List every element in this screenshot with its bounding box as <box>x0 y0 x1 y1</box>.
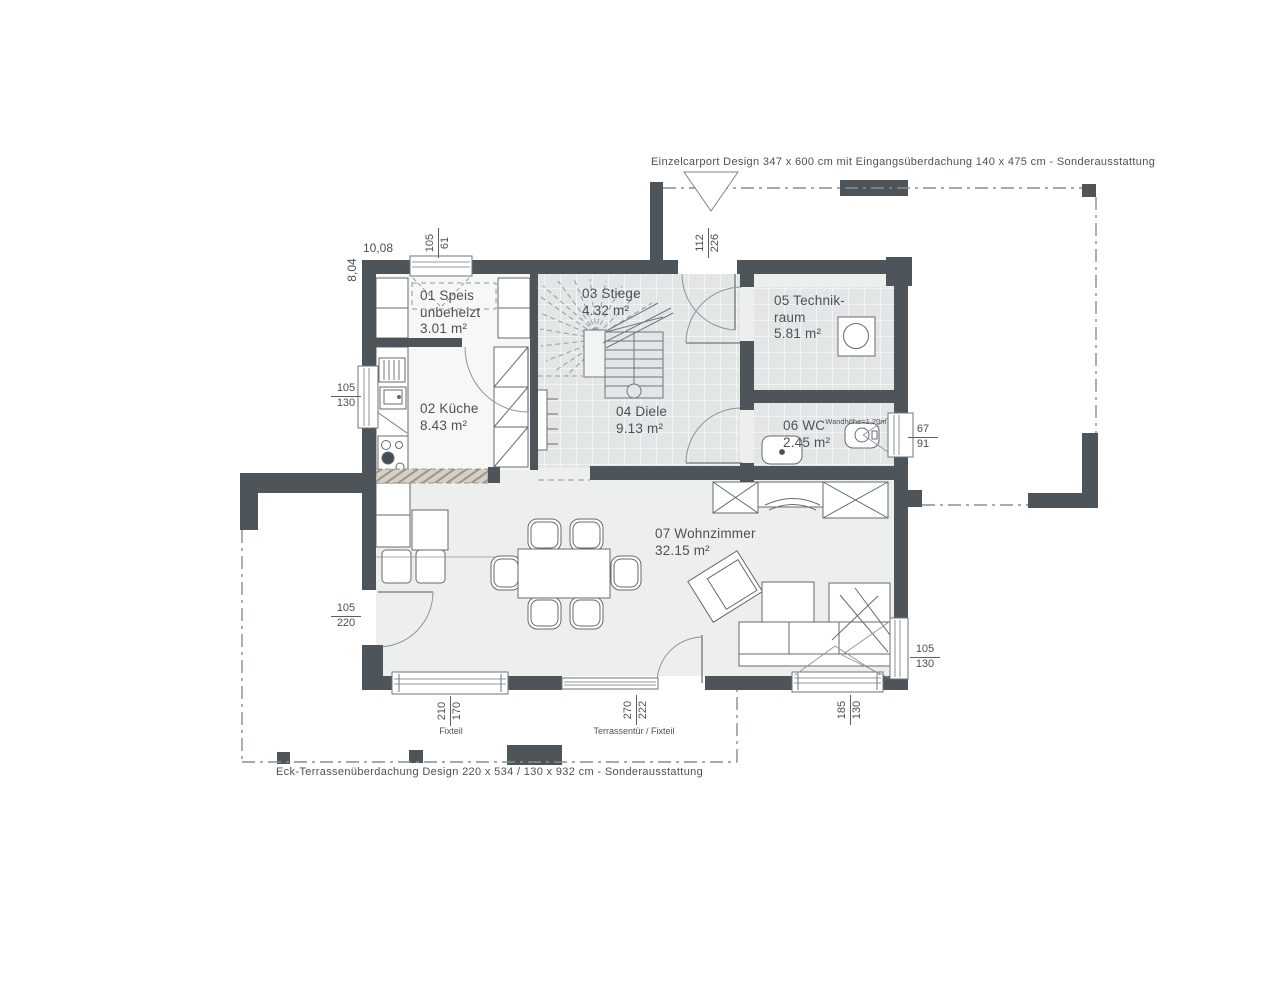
dining-table <box>518 549 610 598</box>
bar-stool-1 <box>382 550 411 583</box>
overall-width-dim: 10,08 <box>363 241 393 255</box>
terrace-privacy-wall-leg <box>240 473 258 530</box>
carport-corner-wall-h <box>1028 493 1098 508</box>
peninsula-counter <box>412 510 448 550</box>
room-label-stiege: 03 Stiege 4.32 m² <box>582 286 641 319</box>
floor-plan-drawing <box>0 0 1280 997</box>
burner-3 <box>382 452 394 464</box>
room-label-wohnzimmer: 07 Wohnzimmer 32.15 m² <box>655 526 756 559</box>
dim-fixed-window-left: 210170 <box>436 691 464 731</box>
bottom-right-window <box>792 672 883 692</box>
terrace-fixed-window <box>562 678 658 689</box>
dim-bottom-right-window: 185130 <box>836 690 864 730</box>
room-label-technikraum: 05 Technik- raum 5.81 m² <box>774 293 845 343</box>
glass-partition-hatch <box>376 469 488 483</box>
walls <box>240 180 1098 765</box>
dishwasher <box>379 358 405 382</box>
room-label-diele: 04 Diele 9.13 m² <box>616 404 667 437</box>
dim-wc-window: 6791 <box>903 423 943 451</box>
carport-corner-wall-v <box>1082 433 1098 495</box>
terrace-privacy-wall <box>240 473 376 493</box>
overall-height-dim: 8,04 <box>345 250 359 290</box>
carport-annotation: Einzelcarport Design 347 x 600 cm mit Ei… <box>651 156 1155 168</box>
terrace-annotation: Eck-Terrassenüberdachung Design 220 x 53… <box>276 766 703 778</box>
stair-start-marker <box>627 384 641 398</box>
partition-end-post <box>488 467 500 483</box>
terrace-post-2 <box>409 750 423 763</box>
coffee-table <box>762 582 814 622</box>
caption-terrassentuer: Terrassentür / Fixteil <box>564 726 704 736</box>
bar-stool-2 <box>416 550 445 583</box>
wall-kitchen-hall <box>530 274 538 470</box>
dim-living-right-window: 105130 <box>905 643 945 671</box>
room-label-wc: 06 WCWandhöhe=1,20m 2.45 m² <box>783 414 887 451</box>
dim-terrace-door: 270222 <box>622 690 650 730</box>
wc-wall-height-note: Wandhöhe=1,20m <box>825 417 886 426</box>
room-label-speis: 01 Speis unbeheizt 3.01 m² <box>420 288 480 338</box>
wall-hall-living <box>590 466 894 480</box>
sofa-seat <box>739 622 892 656</box>
entrance-marker-triangle <box>684 172 738 211</box>
floor-plan-canvas: Einzelcarport Design 347 x 600 cm mit Ei… <box>0 0 1280 997</box>
room-label-kueche: 02 Küche 8.43 m² <box>420 401 479 434</box>
dim-entrance-door: 112226 <box>694 223 722 263</box>
sink-tap <box>398 396 401 399</box>
right-wall-pillar <box>908 490 922 507</box>
wall-technik-wc <box>754 390 894 403</box>
dim-kitchen-window: 105130 <box>326 382 366 410</box>
wall-pantry-kitchen <box>362 338 462 347</box>
stair-core <box>584 330 606 377</box>
caption-fixteil: Fixteil <box>411 726 491 736</box>
carport-post <box>1082 184 1096 197</box>
entry-canopy-wall <box>650 182 663 262</box>
dim-pantry-window: 10561 <box>424 223 452 263</box>
dim-side-door: 105220 <box>326 602 366 630</box>
